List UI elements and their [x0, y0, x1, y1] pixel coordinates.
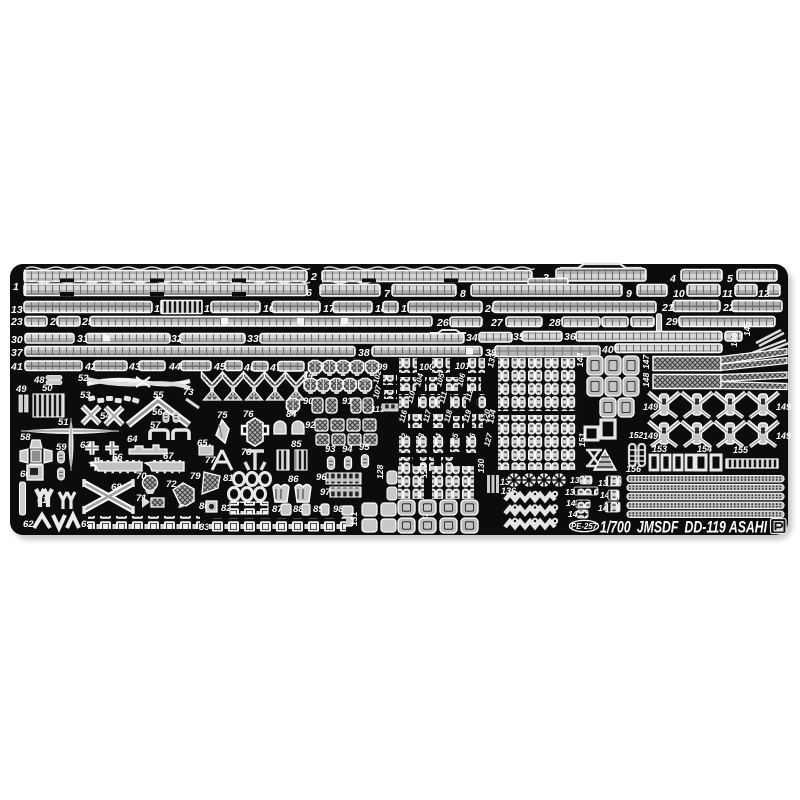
- svg-text:62: 62: [23, 519, 34, 530]
- svg-text:23: 23: [10, 316, 23, 328]
- svg-text:1/700 JMSDF DD-119 ASAHI: 1/700 JMSDF DD-119 ASAHI: [600, 518, 768, 537]
- svg-text:128: 128: [375, 465, 385, 479]
- svg-text:86: 86: [288, 474, 299, 485]
- svg-text:5: 5: [727, 273, 733, 285]
- svg-text:130: 130: [476, 459, 486, 473]
- svg-text:93: 93: [325, 444, 336, 455]
- svg-text:73: 73: [183, 387, 194, 398]
- svg-text:95: 95: [359, 442, 370, 453]
- svg-text:37: 37: [11, 347, 24, 359]
- svg-text:PE-257: PE-257: [571, 522, 598, 531]
- svg-text:101: 101: [455, 361, 470, 371]
- svg-text:56: 56: [152, 407, 163, 418]
- svg-text:154: 154: [697, 444, 712, 454]
- svg-text:147: 147: [641, 354, 651, 369]
- svg-text:76: 76: [243, 409, 254, 420]
- svg-text:148: 148: [641, 373, 651, 387]
- svg-text:64: 64: [127, 434, 138, 445]
- svg-text:85: 85: [291, 439, 302, 450]
- svg-text:36: 36: [564, 331, 576, 343]
- svg-text:10: 10: [673, 288, 685, 300]
- svg-text:40: 40: [601, 344, 614, 356]
- svg-text:149: 149: [643, 431, 658, 441]
- svg-text:21: 21: [661, 302, 674, 314]
- svg-text:155: 155: [733, 445, 749, 455]
- svg-text:27: 27: [490, 317, 504, 329]
- svg-text:58: 58: [20, 432, 31, 443]
- svg-text:34: 34: [466, 332, 478, 344]
- svg-text:149: 149: [776, 431, 791, 441]
- svg-text:2: 2: [310, 271, 317, 283]
- svg-text:33: 33: [247, 333, 259, 345]
- svg-text:144: 144: [575, 353, 585, 367]
- svg-text:11: 11: [722, 288, 733, 300]
- svg-text:100: 100: [419, 362, 434, 372]
- svg-text:44: 44: [168, 361, 181, 373]
- svg-text:9: 9: [626, 288, 632, 300]
- svg-text:6: 6: [306, 287, 312, 299]
- svg-text:81: 81: [223, 473, 234, 484]
- svg-text:149: 149: [643, 402, 658, 412]
- svg-text:4: 4: [669, 273, 676, 285]
- svg-text:151: 151: [577, 433, 587, 447]
- svg-text:146: 146: [729, 333, 739, 347]
- svg-text:49: 49: [15, 384, 27, 395]
- svg-text:50: 50: [42, 383, 53, 394]
- svg-text:26: 26: [436, 317, 449, 329]
- svg-text:84: 84: [286, 409, 297, 420]
- svg-text:41: 41: [10, 361, 23, 373]
- svg-text:8: 8: [460, 288, 466, 300]
- svg-text:145: 145: [742, 322, 752, 336]
- svg-text:156: 156: [626, 464, 642, 474]
- svg-text:30: 30: [11, 334, 23, 346]
- svg-text:13: 13: [11, 304, 23, 316]
- svg-text:153: 153: [652, 444, 667, 454]
- svg-text:45: 45: [213, 361, 226, 373]
- svg-text:51: 51: [58, 417, 69, 428]
- svg-text:75: 75: [217, 410, 228, 421]
- svg-text:1: 1: [13, 281, 19, 293]
- svg-text:29: 29: [665, 316, 678, 328]
- svg-text:149: 149: [776, 402, 791, 412]
- svg-text:152: 152: [629, 430, 643, 440]
- svg-text:79: 79: [190, 471, 201, 482]
- svg-text:38: 38: [358, 347, 370, 359]
- svg-text:94: 94: [342, 444, 353, 455]
- svg-text:131: 131: [349, 512, 359, 526]
- svg-text:28: 28: [548, 317, 561, 329]
